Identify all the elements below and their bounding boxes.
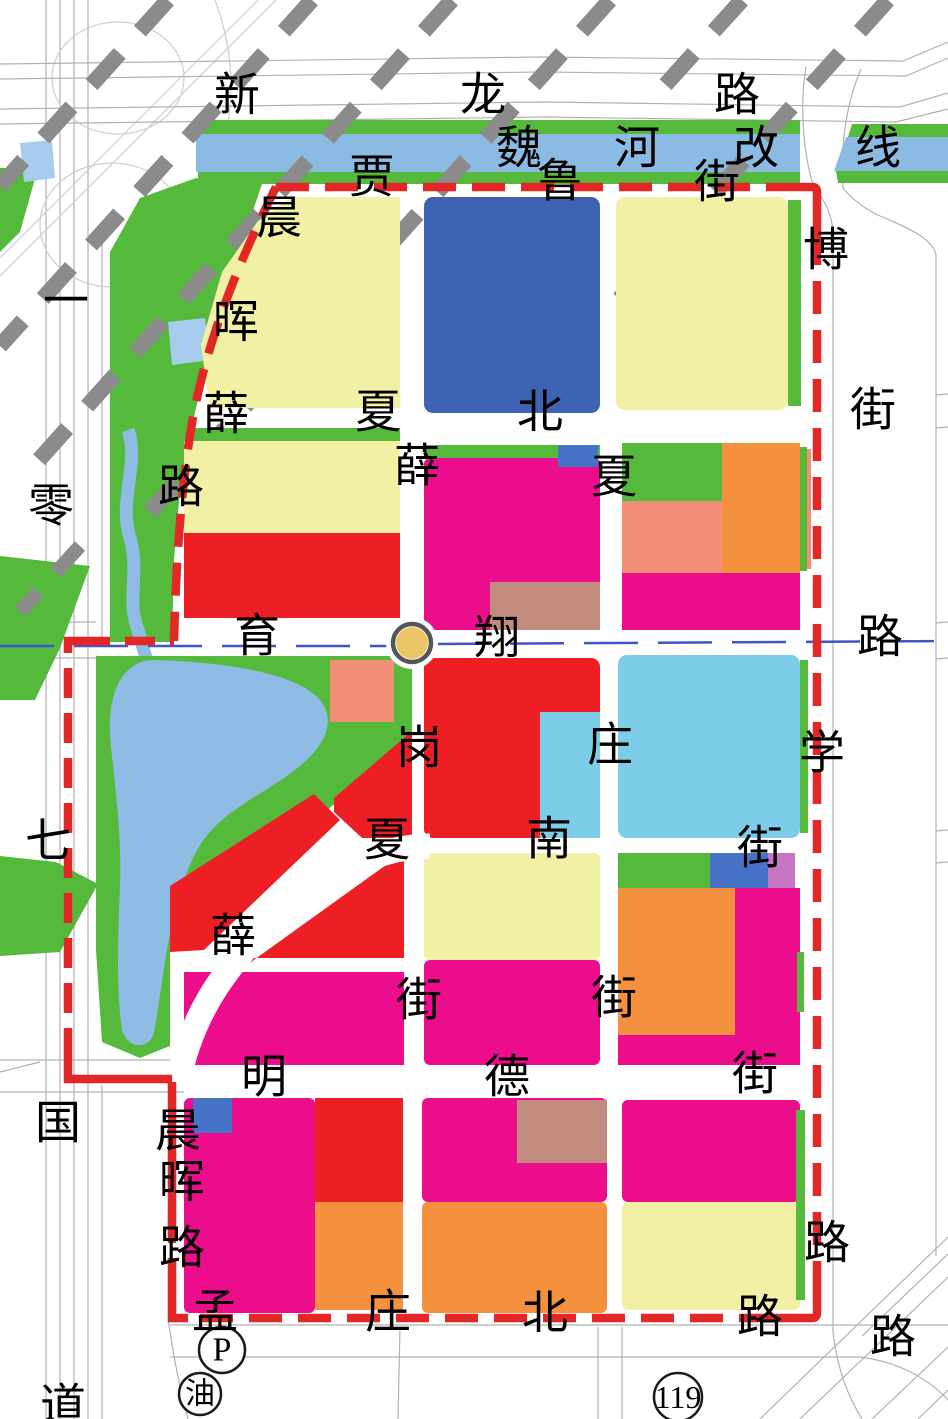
cross-street-stub xyxy=(936,658,948,659)
road-label-xinlong-road: 路 xyxy=(714,70,760,121)
road-label-xinlong-road: 新 xyxy=(214,70,260,121)
land-parcel-green xyxy=(622,443,722,501)
road-label-xuexia-north-street: 薛 xyxy=(203,389,249,440)
parcel-green-strip xyxy=(788,200,801,406)
master-plan-map: P油119新龙路魏河改线贾鲁街晨晖路博学路一零七国道薛夏北街薛岗街夏庄街育翔路薛… xyxy=(0,0,948,1419)
land-parcel-green xyxy=(618,853,710,888)
road-label-jialu-street: 街 xyxy=(694,157,740,208)
road-label-chenhui-road-north: 路 xyxy=(158,462,204,513)
bypass-diagonal xyxy=(918,1390,948,1419)
highway-119-shield-label: 119 xyxy=(655,1379,702,1415)
road-label-xuegang-street: 岗 xyxy=(396,723,442,774)
road-label-xuexia-north-street: 街 xyxy=(850,385,896,436)
cross-street-stub xyxy=(936,427,948,428)
road-label-yuxiang-road: 路 xyxy=(857,612,903,663)
road-label-boxue-road: 学 xyxy=(799,728,845,779)
road-label-xuegang-street: 街 xyxy=(396,975,442,1026)
road-label-national-road-107: 零 xyxy=(28,481,74,532)
plan-boundary-solid xyxy=(68,1058,172,1079)
parcel-green-strip xyxy=(797,952,804,1012)
cross-street-stub xyxy=(936,830,948,831)
road-label-weihe-realignment-river: 魏 xyxy=(496,123,542,174)
east-road-line xyxy=(843,188,936,1256)
road-label-national-road-107: 七 xyxy=(25,816,71,867)
land-parcel-mixed xyxy=(622,1100,800,1202)
land-parcel-service xyxy=(622,501,722,573)
road-label-mengzhuang-north-road: 路 xyxy=(737,1292,783,1343)
road-label-chenhui-road-north: 晖 xyxy=(213,297,259,348)
land-parcel-residential xyxy=(184,441,400,533)
green-space xyxy=(0,556,90,700)
road-label-mingde-street: 德 xyxy=(484,1052,530,1103)
parcel-green-strip xyxy=(796,1110,805,1300)
roundabout-center xyxy=(396,627,428,659)
land-parcel-mixed xyxy=(622,573,800,630)
road-label-mengzhuang-north-road: 北 xyxy=(522,1288,568,1339)
xinlong-road-line xyxy=(0,42,948,64)
pond xyxy=(20,140,55,182)
land-parcel-industry xyxy=(422,1202,607,1313)
land-parcel-commercial xyxy=(315,1098,403,1202)
g107-corner-line xyxy=(0,1062,40,1072)
land-parcel-education xyxy=(618,655,800,838)
land-parcel-service xyxy=(330,660,394,722)
road-label-yuxiang-road: 育 xyxy=(234,611,280,662)
road-label-xinlong-road: 龙 xyxy=(460,70,506,121)
road-label-mengzhuang-north-road: 孟 xyxy=(192,1287,238,1338)
road-label-xuexia-south-street: 街 xyxy=(737,823,783,874)
green-space xyxy=(0,856,98,956)
road-label-mengzhuang-north-road: 庄 xyxy=(365,1287,411,1338)
mengzhuang-south-line xyxy=(170,1357,948,1400)
parcel-green-strip xyxy=(800,447,807,571)
land-parcel-public xyxy=(424,197,600,413)
land-parcel-industry xyxy=(722,443,800,573)
map-canvas: P油119新龙路魏河改线贾鲁街晨晖路博学路一零七国道薛夏北街薛岗街夏庄街育翔路薛… xyxy=(0,0,948,1419)
land-parcel-service xyxy=(517,1100,607,1163)
land-parcel-residential xyxy=(424,853,600,960)
road-label-jialu-street: 贾 xyxy=(349,152,395,203)
road-label-chenhui-road-south: 路 xyxy=(159,1223,205,1274)
road-label-bypass-road: 路 xyxy=(870,1312,916,1363)
road-label-xuexia-north-street: 北 xyxy=(517,387,563,438)
road-label-xuexia-north-street: 夏 xyxy=(355,387,401,438)
street-continuation xyxy=(398,1327,400,1419)
road-label-weihe-realignment-river: 河 xyxy=(614,123,660,174)
road-label-boxue-road: 路 xyxy=(804,1218,850,1269)
road-label-xuexia-south-street: 南 xyxy=(526,814,572,865)
road-label-weihe-realignment-river: 线 xyxy=(855,123,901,174)
road-label-national-road-107: 一 xyxy=(43,276,89,327)
road-label-xiazhuang-street: 街 xyxy=(591,973,637,1024)
cross-street-stub xyxy=(936,862,948,863)
parcel-sliver xyxy=(807,449,811,569)
road-label-chenhui-road-north: 晨 xyxy=(256,193,302,244)
road-label-boxue-road: 博 xyxy=(803,225,849,276)
land-parcel-residential xyxy=(616,197,788,410)
cross-street-stub xyxy=(936,394,948,395)
road-label-mingde-street: 街 xyxy=(732,1049,778,1100)
gas-station-marker-label: 油 xyxy=(185,1378,215,1411)
road-label-national-road-107: 道 xyxy=(40,1381,86,1419)
road-label-xiazhuang-street: 庄 xyxy=(587,720,633,771)
road-label-chenhui-road-south: 晨 xyxy=(155,1106,201,1157)
road-label-xuegang-street: 薛 xyxy=(394,441,440,492)
road-label-chenhui-road-south: 晖 xyxy=(159,1157,205,1208)
land-parcel-commercial xyxy=(184,533,400,618)
road-label-xuexia-south-street: 薛 xyxy=(210,911,256,962)
road-label-mingde-street: 明 xyxy=(241,1052,287,1103)
road-label-yuxiang-road: 翔 xyxy=(474,613,520,664)
road-label-xiazhuang-street: 夏 xyxy=(591,452,637,503)
road-label-jialu-street: 鲁 xyxy=(537,156,583,207)
cross-street-stub xyxy=(936,622,948,623)
land-parcel-mixed xyxy=(424,960,600,1065)
road-label-national-road-107: 国 xyxy=(35,1098,81,1149)
road-label-xuexia-south-street: 夏 xyxy=(364,815,410,866)
